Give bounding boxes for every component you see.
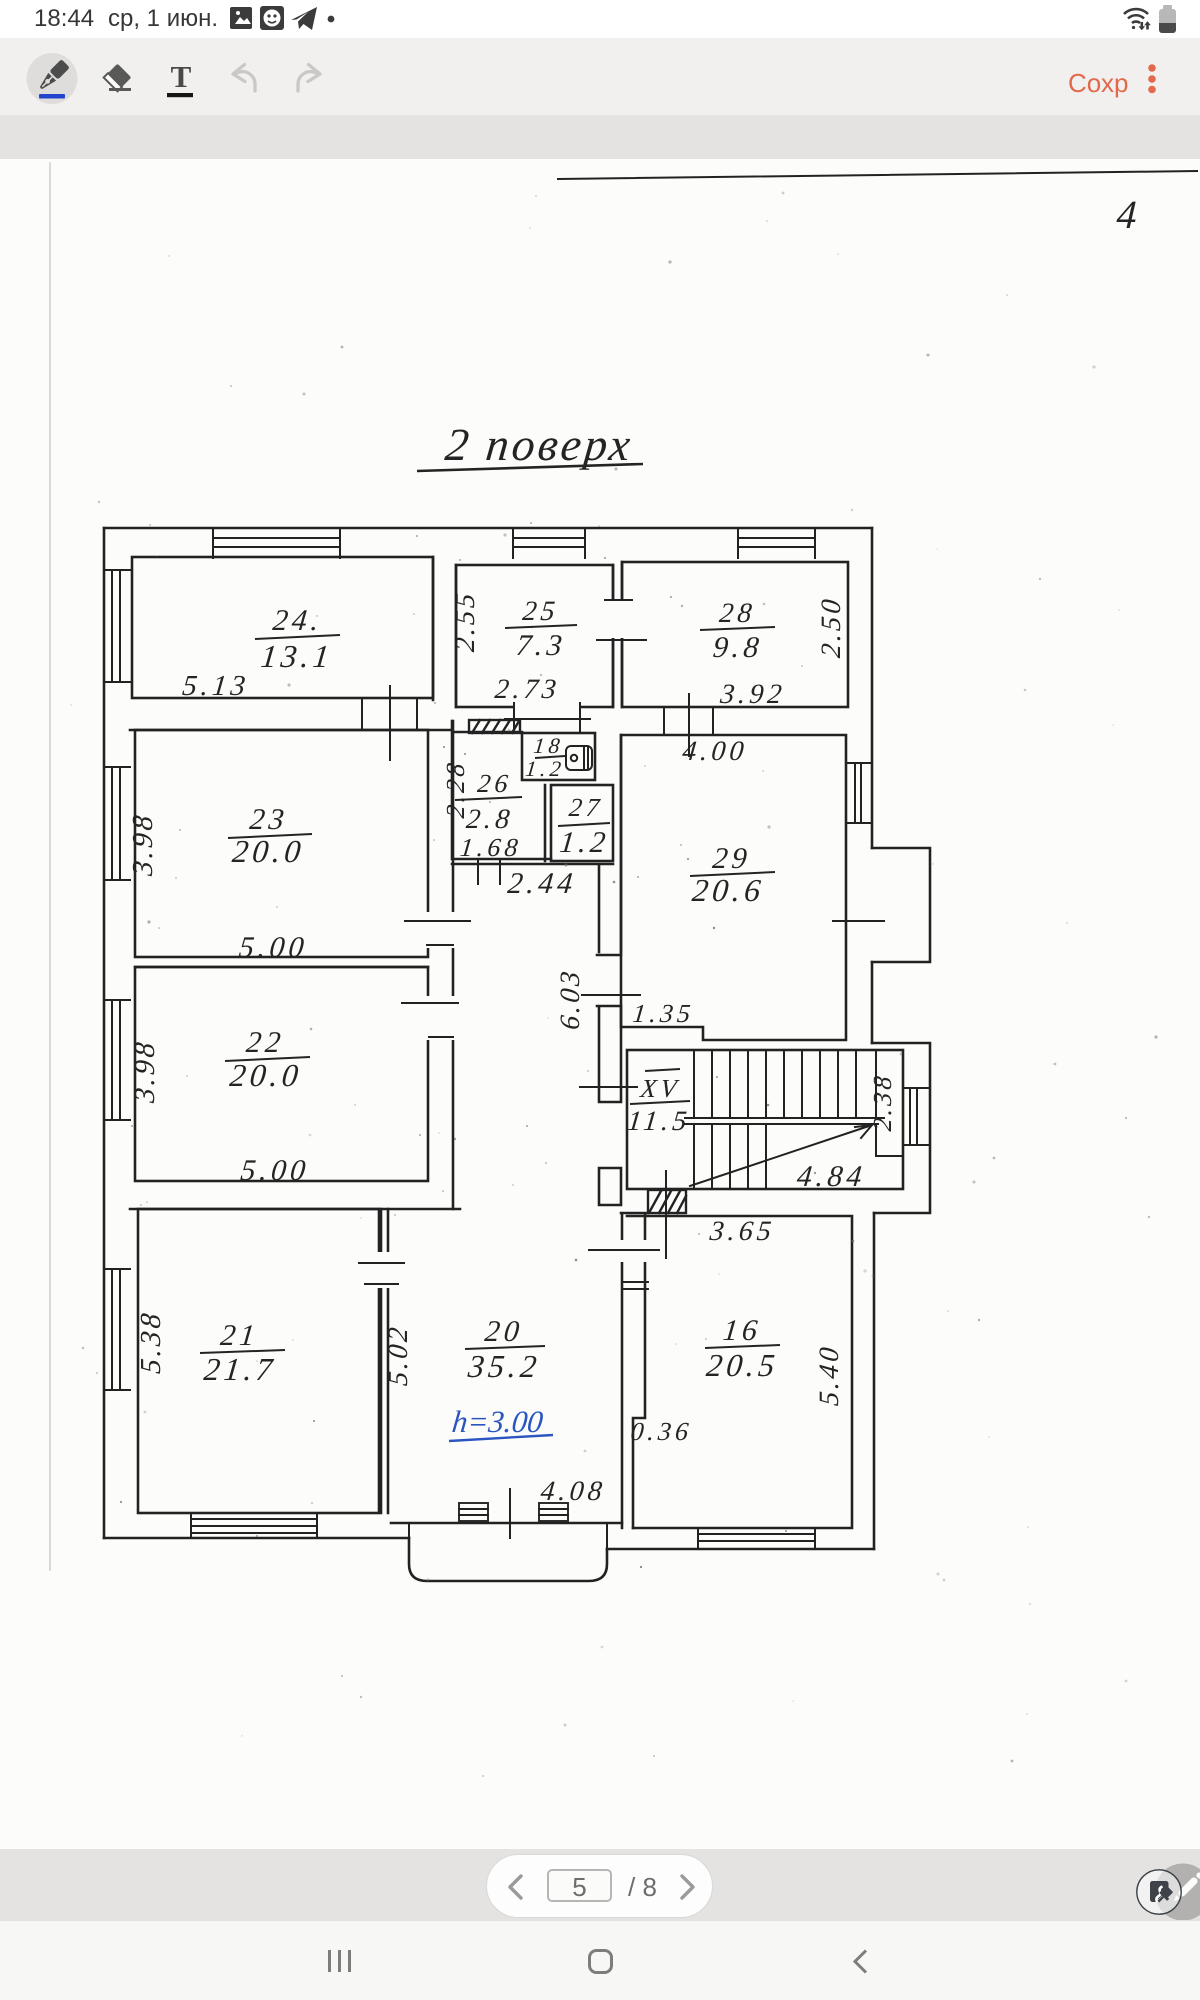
svg-text:23: 23	[248, 802, 290, 836]
svg-text:2 поверх: 2 поверх	[443, 419, 636, 470]
svg-text:35.2: 35.2	[466, 1348, 543, 1384]
svg-text:1.68: 1.68	[459, 833, 524, 862]
svg-text:2.8: 2.8	[465, 804, 515, 835]
svg-text:1.2: 1.2	[524, 756, 566, 781]
svg-text:18: 18	[532, 733, 565, 758]
svg-text:2.73: 2.73	[493, 674, 561, 705]
svg-text:5.38: 5.38	[135, 1309, 167, 1375]
svg-text:2.55: 2.55	[450, 589, 481, 653]
svg-text:2.44: 2.44	[506, 866, 578, 900]
svg-text:11.5: 11.5	[626, 1106, 692, 1137]
svg-text:1.2: 1.2	[558, 825, 611, 859]
svg-text:1.35: 1.35	[631, 999, 696, 1028]
svg-text:5.00: 5.00	[237, 930, 309, 964]
svg-text:4: 4	[1116, 192, 1142, 237]
svg-text:20.6: 20.6	[691, 872, 767, 908]
svg-text:6.03: 6.03	[555, 967, 586, 1031]
svg-text:20.5: 20.5	[705, 1347, 781, 1383]
svg-text:5.13: 5.13	[181, 670, 251, 702]
svg-text:3.92: 3.92	[718, 679, 787, 710]
svg-text:29: 29	[711, 841, 753, 875]
svg-text:16: 16	[721, 1313, 763, 1347]
svg-text:7.3: 7.3	[515, 628, 568, 662]
svg-text:0.36: 0.36	[629, 1417, 694, 1446]
svg-text:XV: XV	[638, 1074, 682, 1103]
svg-text:20.0: 20.0	[231, 833, 307, 869]
svg-text:24.: 24.	[271, 603, 324, 637]
svg-text:20.0: 20.0	[228, 1057, 304, 1093]
svg-text:4.84: 4.84	[795, 1159, 867, 1193]
svg-text:2.38: 2.38	[868, 1072, 897, 1133]
svg-text:22: 22	[245, 1025, 287, 1059]
svg-text:21.7: 21.7	[202, 1351, 278, 1387]
svg-text:5.02: 5.02	[383, 1323, 414, 1387]
svg-text:2.50: 2.50	[816, 595, 847, 659]
svg-text:28: 28	[718, 598, 757, 629]
svg-text:3.98: 3.98	[127, 811, 159, 878]
svg-text:13.1: 13.1	[259, 638, 335, 674]
svg-text:27: 27	[568, 793, 605, 822]
svg-text:h=3.00: h=3.00	[450, 1404, 545, 1439]
svg-text:21: 21	[219, 1318, 261, 1352]
svg-text:3.65: 3.65	[707, 1216, 776, 1247]
svg-text:20: 20	[483, 1314, 525, 1348]
svg-text:5.40: 5.40	[814, 1343, 845, 1407]
svg-text:5.00: 5.00	[239, 1153, 311, 1187]
svg-text:2.28: 2.28	[441, 759, 470, 820]
svg-text:4.00: 4.00	[681, 736, 749, 767]
svg-text:26: 26	[476, 769, 513, 798]
svg-text:9.8: 9.8	[711, 630, 764, 664]
svg-text:4.08: 4.08	[539, 1476, 607, 1507]
svg-text:25: 25	[521, 596, 560, 627]
svg-text:3.98: 3.98	[129, 1038, 161, 1105]
